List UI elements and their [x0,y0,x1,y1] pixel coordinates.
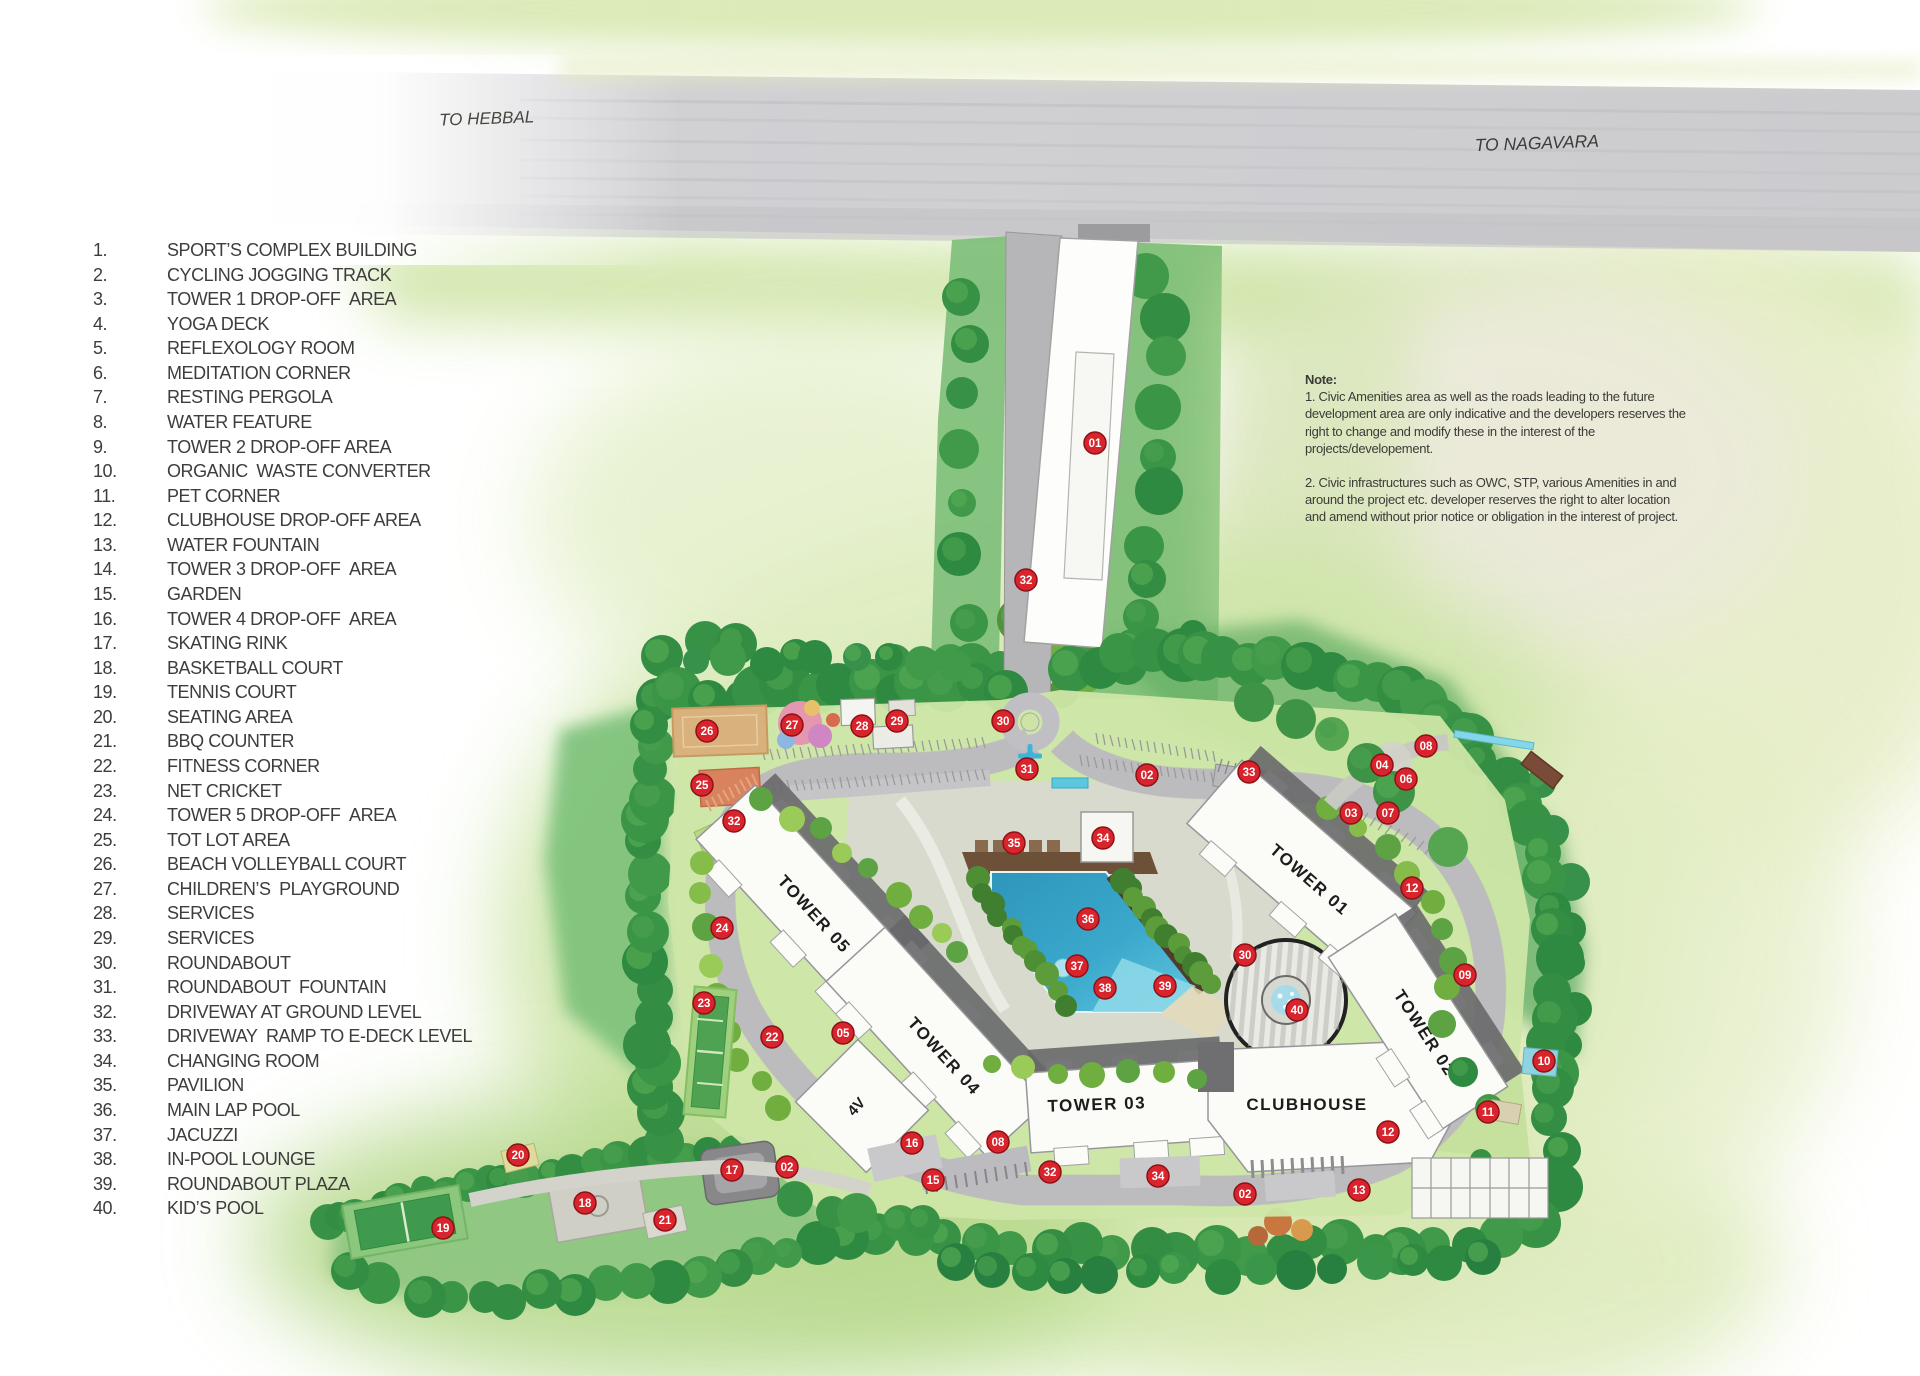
svg-text:16: 16 [906,1138,919,1150]
svg-text:07: 07 [1382,808,1395,820]
svg-text:25: 25 [696,780,709,792]
svg-text:22: 22 [766,1032,779,1044]
svg-text:12: 12 [1406,883,1419,895]
svg-text:36: 36 [1082,914,1095,926]
svg-text:31: 31 [1021,764,1034,776]
svg-text:21: 21 [659,1215,672,1227]
svg-text:17: 17 [726,1165,739,1177]
svg-text:13: 13 [1353,1185,1366,1197]
svg-text:10: 10 [1538,1056,1551,1068]
svg-text:03: 03 [1345,808,1358,820]
svg-text:02: 02 [1141,770,1154,782]
svg-text:09: 09 [1459,970,1472,982]
svg-text:23: 23 [698,998,711,1010]
svg-text:26: 26 [701,726,714,738]
svg-text:33: 33 [1243,767,1256,779]
svg-text:04: 04 [1376,760,1389,772]
svg-text:32: 32 [1044,1167,1057,1179]
svg-text:05: 05 [837,1028,850,1040]
svg-text:30: 30 [1239,950,1252,962]
svg-text:02: 02 [1239,1189,1252,1201]
svg-text:01: 01 [1089,438,1102,450]
svg-text:24: 24 [716,923,729,935]
svg-text:38: 38 [1099,983,1112,995]
svg-text:40: 40 [1291,1005,1304,1017]
svg-text:39: 39 [1159,981,1172,993]
svg-text:32: 32 [1020,575,1033,587]
svg-text:12: 12 [1382,1127,1395,1139]
svg-text:08: 08 [1420,741,1433,753]
svg-text:CLUBHOUSE: CLUBHOUSE [1246,1095,1367,1114]
svg-text:11: 11 [1482,1107,1495,1119]
svg-text:35: 35 [1008,838,1021,850]
svg-text:34: 34 [1097,833,1110,845]
svg-text:15: 15 [927,1175,940,1187]
svg-text:02: 02 [781,1162,794,1174]
svg-text:27: 27 [786,720,799,732]
svg-text:TO HEBBAL: TO HEBBAL [439,107,535,129]
svg-text:34: 34 [1152,1171,1165,1183]
svg-text:06: 06 [1400,774,1413,786]
svg-text:19: 19 [437,1223,450,1235]
svg-text:TOWER 03: TOWER 03 [1047,1093,1146,1115]
svg-text:28: 28 [856,721,869,733]
svg-text:32: 32 [728,816,741,828]
svg-text:37: 37 [1071,961,1084,973]
svg-text:30: 30 [997,716,1010,728]
svg-text:29: 29 [891,716,904,728]
svg-text:08: 08 [992,1137,1005,1149]
